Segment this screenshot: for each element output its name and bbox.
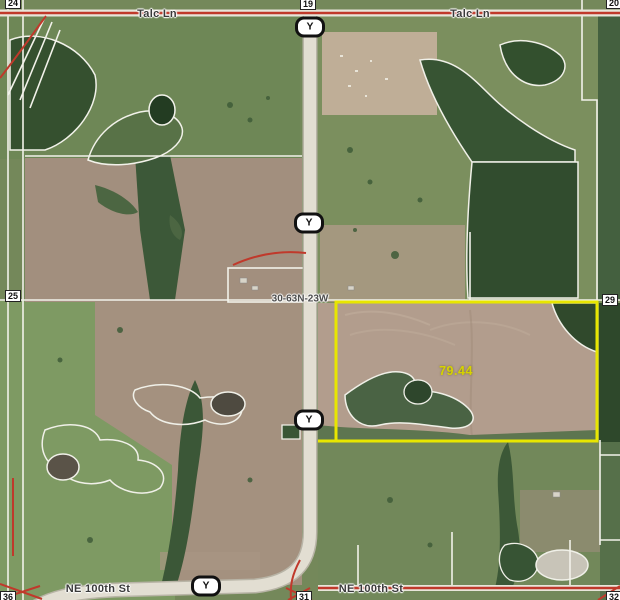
aerial-map-viewport[interactable]: Talc Ln Talc Ln NE 100th St NE 100th St …	[0, 0, 620, 600]
aerial-imagery	[0, 0, 620, 600]
